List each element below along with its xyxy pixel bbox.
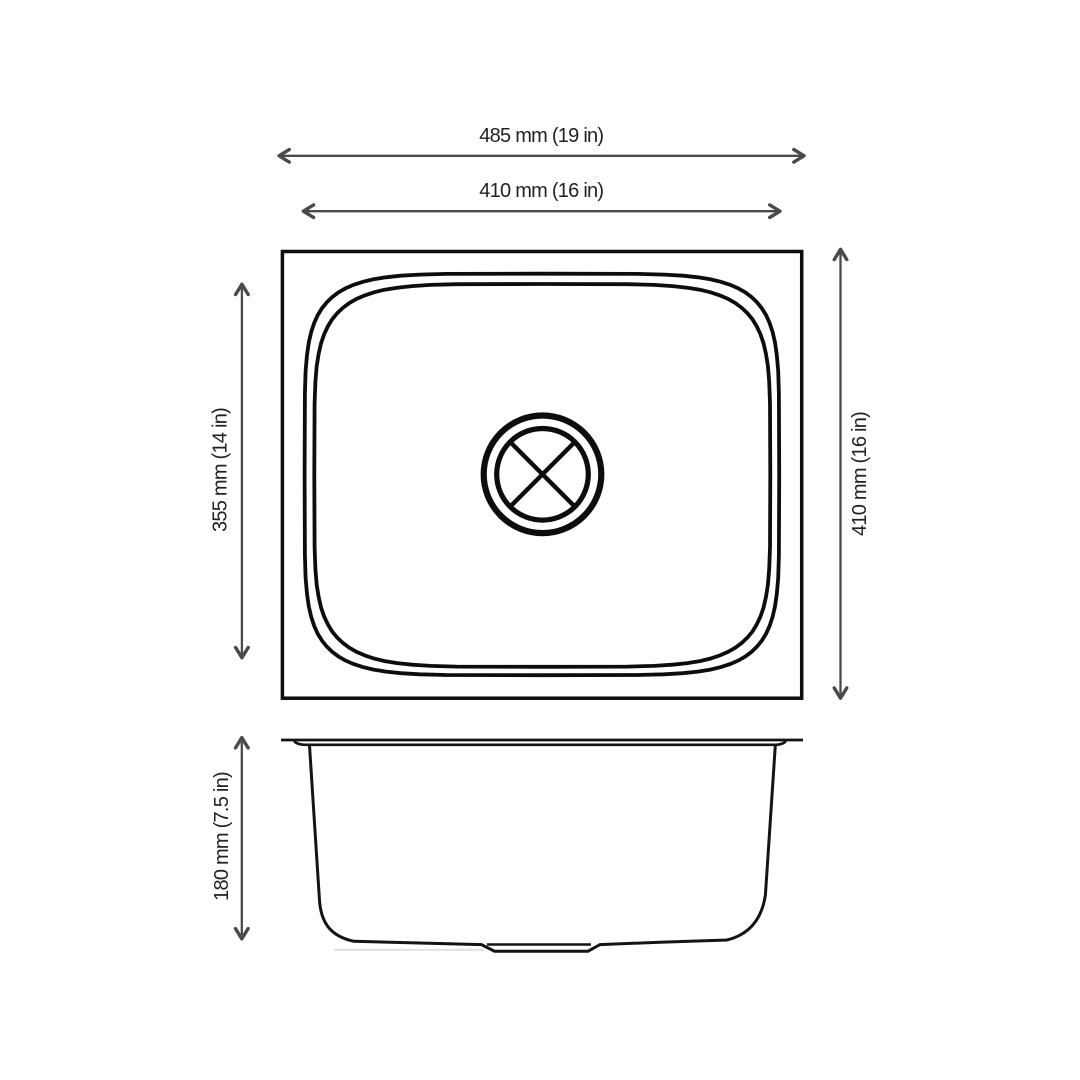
svg-text:485 mm (19 in): 485 mm (19 in) [479, 125, 603, 147]
svg-text:410 mm (16 in): 410 mm (16 in) [479, 180, 603, 202]
svg-text:355 mm (14 in): 355 mm (14 in) [210, 408, 232, 532]
svg-text:410 mm (16 in): 410 mm (16 in) [849, 412, 871, 536]
svg-text:180 mm (7.5 in): 180 mm (7.5 in) [211, 772, 233, 901]
